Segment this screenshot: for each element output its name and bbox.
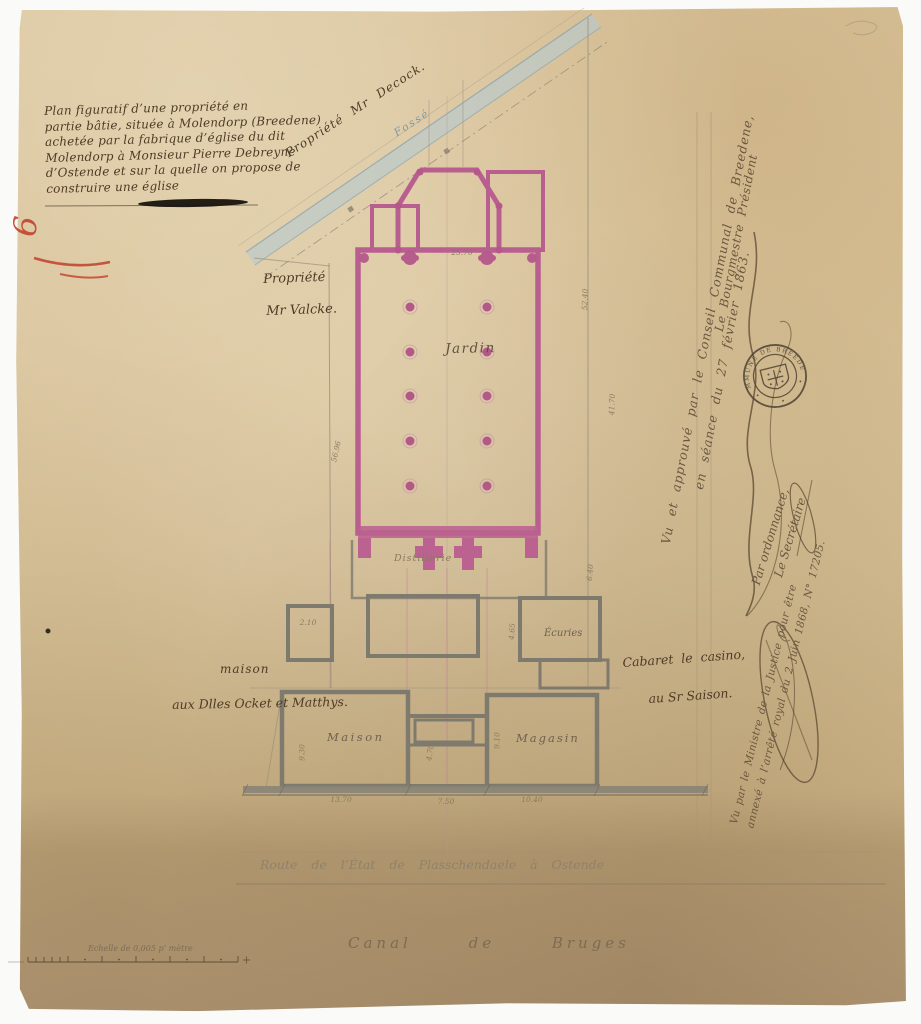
label-canal: Canal de Bruges — [348, 934, 630, 952]
label-property-valcke-2: Mr Valcke. — [266, 302, 337, 319]
dim-right-lower: 41.70 — [607, 386, 617, 422]
label-road: Route de l’État de Plasschendaele à Oste… — [260, 857, 604, 872]
dim-right-upper: 52.40 — [580, 281, 590, 317]
label-house-owner-1: maison — [220, 662, 269, 676]
dim-middle-width: 7.50 — [428, 797, 464, 806]
label-house: Maison — [327, 730, 385, 744]
plan-document: COMMUNE DE BREEDENE — [0, 0, 921, 1024]
label-scale: Echelle de 0,005 p’ mètre — [88, 944, 193, 953]
dim-house-height: 9.30 — [298, 735, 307, 771]
label-store: Magasin — [516, 731, 580, 745]
dim-nave-width: 25.70 — [444, 248, 480, 257]
dim-store-width: 10.40 — [514, 795, 550, 804]
margin-number: 9 — [4, 214, 44, 238]
label-distillery: Distillerie — [394, 553, 452, 564]
label-garden: Jardin — [445, 340, 496, 357]
dim-store-height: 9.10 — [493, 723, 502, 759]
title-block: Plan figuratif d’une propriété en partie… — [44, 97, 323, 197]
dim-shed: 2.10 — [290, 618, 326, 627]
label-house-owner-2: aux Dlles Ocket et Matthys. — [172, 694, 348, 712]
dim-house-width: 13.70 — [323, 795, 359, 804]
label-property-valcke-1: Propriété — [263, 270, 326, 287]
label-stables: Écuries — [544, 628, 582, 639]
